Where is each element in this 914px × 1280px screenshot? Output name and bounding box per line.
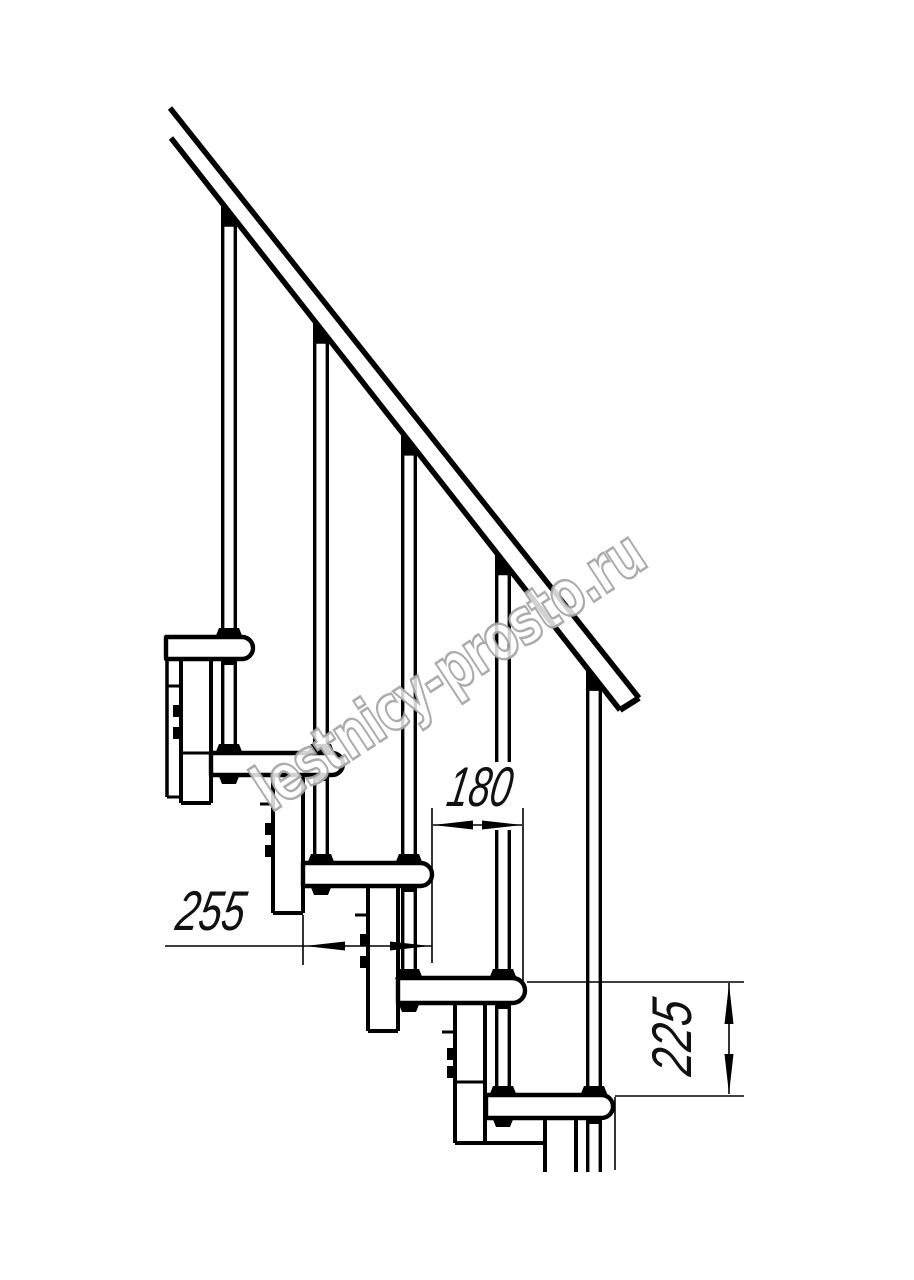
module-clip: [360, 956, 368, 968]
dimension-arrowhead: [305, 942, 345, 951]
module-clip: [360, 934, 368, 946]
tread-collar: [489, 1086, 517, 1096]
tread: [166, 637, 253, 659]
dimension-value: 225: [640, 994, 703, 1080]
dimension-arrowhead: [725, 1054, 734, 1094]
dimension-arrowhead: [725, 984, 734, 1024]
rod-end-nut: [492, 1117, 514, 1127]
rod-end-nut: [398, 1002, 420, 1012]
module-clip: [265, 845, 273, 857]
tread: [398, 978, 525, 1003]
module-clip: [173, 727, 181, 739]
tread-collar: [395, 854, 423, 864]
tread-collar: [307, 854, 335, 864]
module-clip: [265, 823, 273, 835]
rail-collar-wedge: [586, 668, 602, 691]
dimension-value: 255: [171, 879, 251, 942]
dimension-riser-height-225: 225: [527, 982, 744, 1096]
tread-collar: [215, 744, 243, 754]
tread: [303, 863, 432, 886]
dimension-arrowhead: [390, 942, 430, 951]
tread-collar: [395, 969, 423, 979]
dimension-value: 180: [443, 755, 518, 818]
staircase-side-view-diagram: 180255225lestnicy-prosto.ru: [0, 0, 914, 1280]
technical-drawing-page: 180255225lestnicy-prosto.ru: [0, 0, 914, 1280]
handrail-end-cap: [620, 698, 639, 710]
tread-collar: [215, 628, 243, 638]
rail-collar-wedge: [495, 552, 511, 575]
tread-collar: [489, 969, 517, 979]
dimension-tread-depth-255: 255: [165, 879, 432, 965]
module-clip: [173, 705, 181, 717]
module-clip: [447, 1066, 455, 1078]
tread: [486, 1095, 613, 1118]
module-clip: [447, 1048, 455, 1060]
tread-collar: [580, 1086, 608, 1096]
rod-end-nut: [218, 774, 240, 784]
rod-end-nut: [310, 885, 332, 895]
